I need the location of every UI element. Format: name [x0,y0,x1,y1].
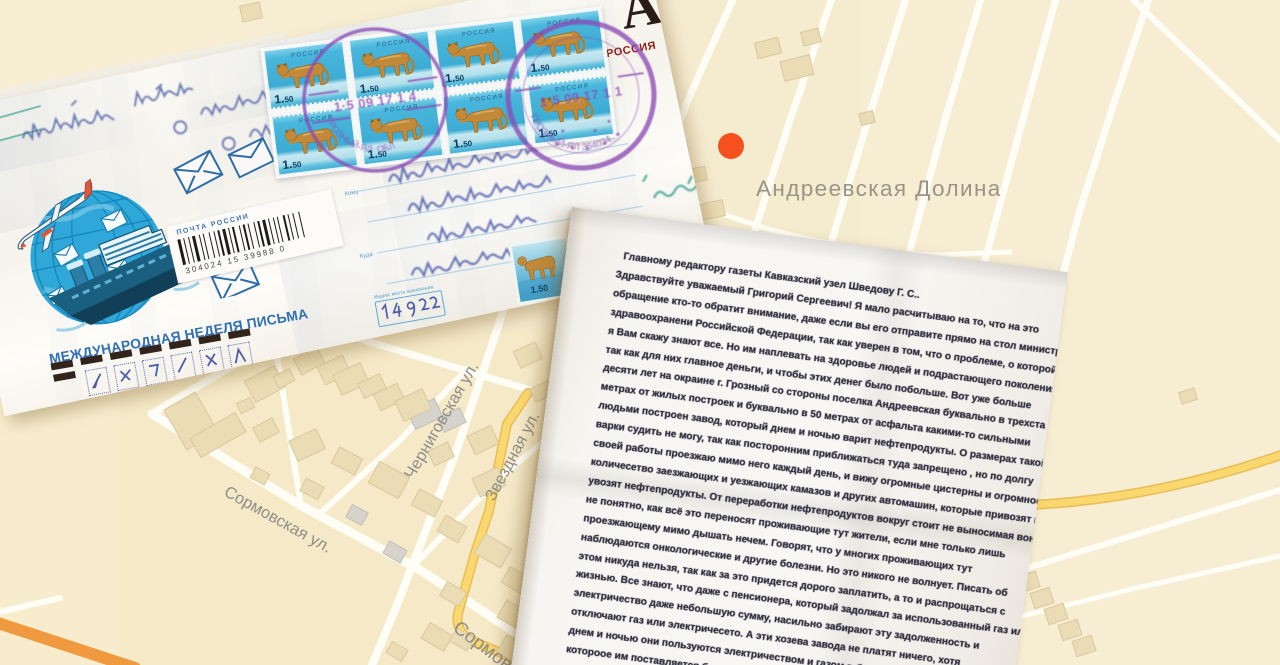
svg-text:Куда: Куда [359,252,374,260]
svg-text:1·5 09 17 1 4: 1·5 09 17 1 4 [333,88,418,114]
svg-text:ГРОЗНЫЙ-ЯЛ. ОБЛ: ГРОЗНЫЙ-ЯЛ. ОБЛ [324,108,396,161]
svg-text:ГРОЗНЫЙ-ЯЛ 364024: ГРОЗНЫЙ-ЯЛ 364024 [527,103,614,160]
svg-text:Андреевская Долина: Андреевская Долина [756,176,1002,201]
svg-text:1·5 09 17 1 1: 1·5 09 17 1 1 [539,83,623,109]
